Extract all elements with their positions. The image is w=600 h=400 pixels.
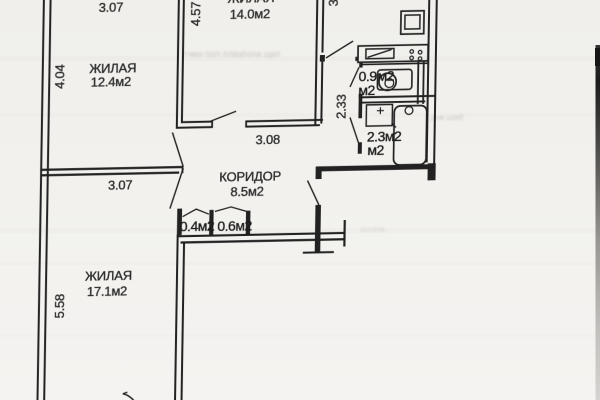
svg-text:м2: м2 <box>367 142 384 158</box>
svg-text:ЖИЛАЯ: ЖИЛАЯ <box>85 268 132 284</box>
svg-text:17.1м2: 17.1м2 <box>87 283 128 299</box>
svg-text:4.57: 4.57 <box>188 2 203 27</box>
svg-text:3: 3 <box>326 0 341 7</box>
svg-text:3.07: 3.07 <box>108 177 133 192</box>
svg-text:0.4м2: 0.4м2 <box>180 218 215 235</box>
svg-text:ЖИЛАЯ: ЖИЛАЯ <box>227 0 274 6</box>
svg-text:12.4м2: 12.4м2 <box>91 74 132 90</box>
svg-text:тчмн пол плваhonк щит: тчмн пол плваhonк щит <box>183 49 281 59</box>
svg-text:8.5м2: 8.5м2 <box>230 184 263 200</box>
svg-text:3.08: 3.08 <box>255 132 280 147</box>
svg-text:м2: м2 <box>358 82 375 98</box>
svg-text:5.58: 5.58 <box>52 294 67 319</box>
svg-text:2.33: 2.33 <box>333 94 348 119</box>
svg-text:шчлпж: шчлпж <box>360 225 386 234</box>
svg-text:0.6м2: 0.6м2 <box>217 217 252 234</box>
svg-text:14.0м2: 14.0м2 <box>230 6 271 22</box>
svg-text:КОРИДОР: КОРИДОР <box>219 169 281 185</box>
svg-text:4.04: 4.04 <box>52 64 67 89</box>
svg-text:3.07: 3.07 <box>99 0 124 15</box>
